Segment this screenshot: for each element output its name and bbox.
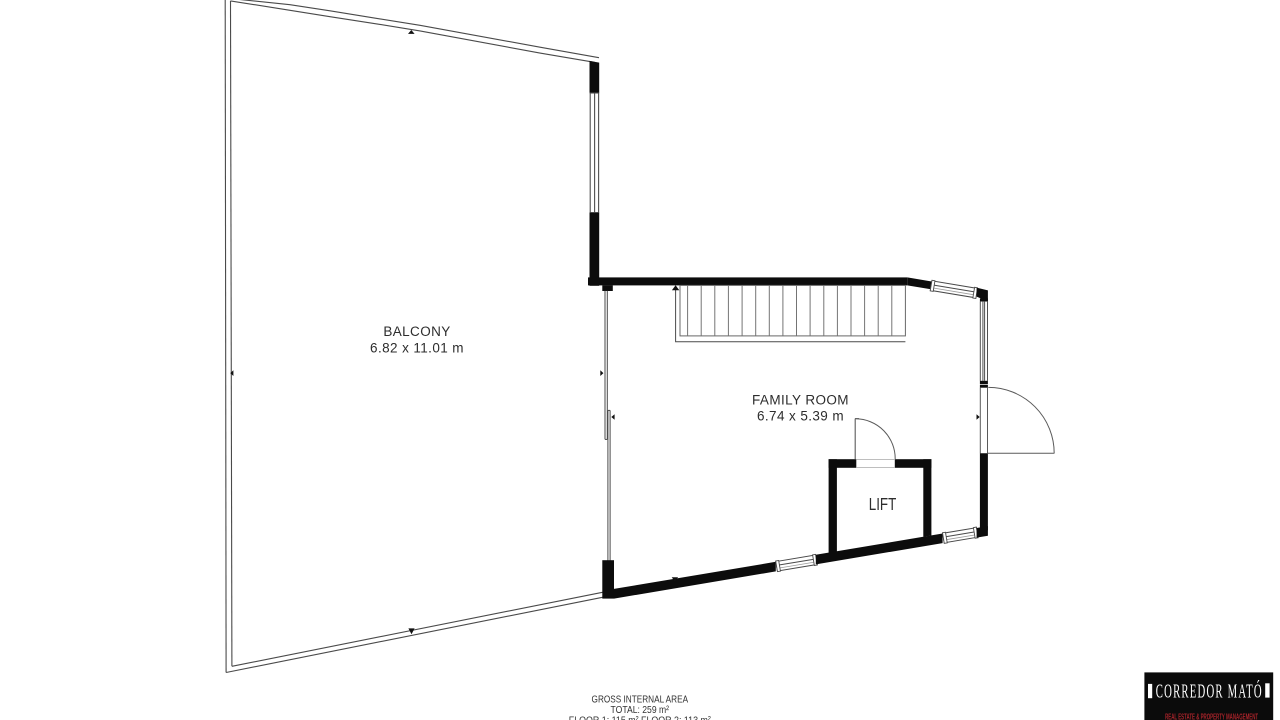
svg-text:LIFT: LIFT — [869, 494, 897, 514]
svg-text:6.82 x 11.01 m: 6.82 x 11.01 m — [370, 340, 464, 355]
svg-text:BALCONY: BALCONY — [383, 324, 450, 339]
svg-text:CORREDOR MATÓ: CORREDOR MATÓ — [1156, 681, 1263, 703]
svg-text:REAL ESTATE & PROPERTY MANAGEM: REAL ESTATE & PROPERTY MANAGEMENT — [1165, 713, 1258, 720]
svg-text:FLOOR 1: 115 m² FLOOR 2: 113 m: FLOOR 1: 115 m² FLOOR 2: 113 m² — [569, 715, 711, 720]
svg-text:FAMILY ROOM: FAMILY ROOM — [752, 392, 849, 407]
svg-text:6.74 x 5.39 m: 6.74 x 5.39 m — [757, 409, 844, 424]
